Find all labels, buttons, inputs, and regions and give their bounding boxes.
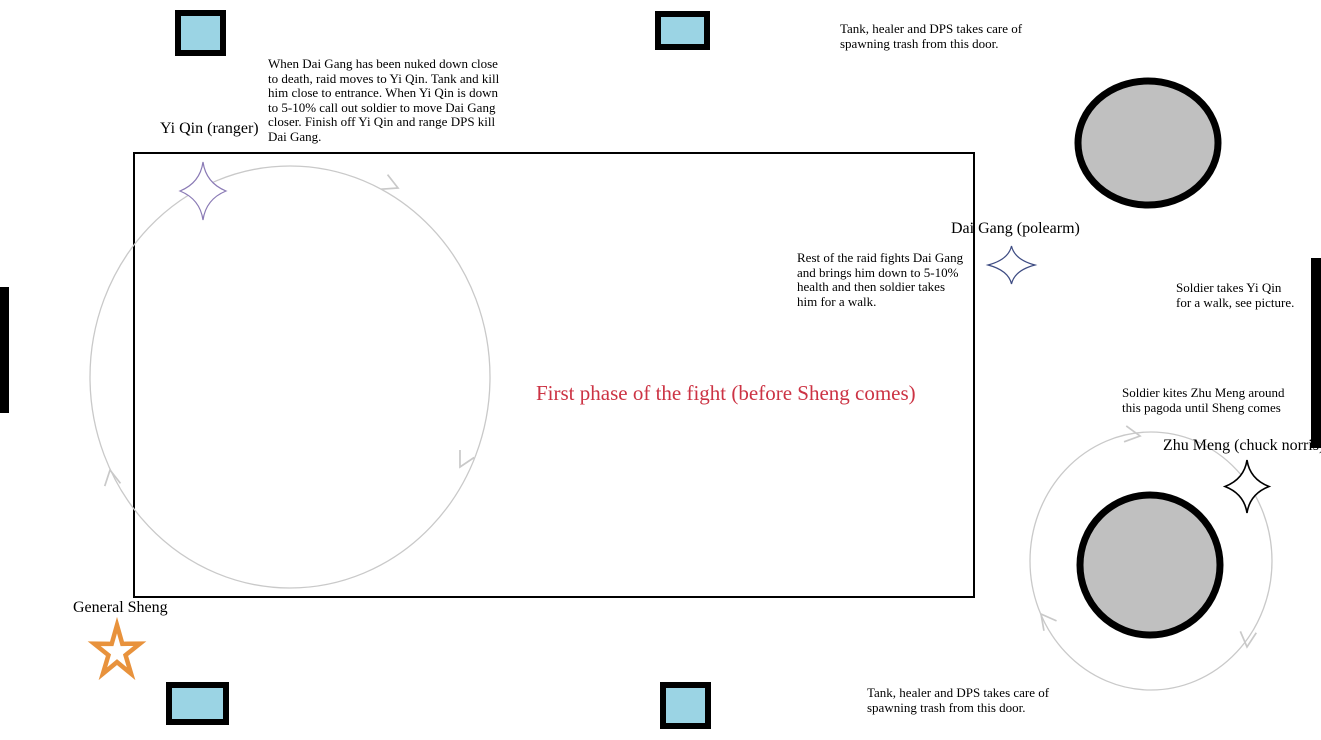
door-top-center (655, 11, 710, 50)
yi-qin-star-icon (180, 162, 226, 220)
note-soldier-kites: Soldier kites Zhu Meng around this pagod… (1122, 386, 1312, 415)
note-rest-raid: Rest of the raid fights Dai Gang and bri… (797, 251, 982, 309)
door-bottom-left (166, 682, 229, 725)
door-bottom-center (660, 682, 711, 729)
zhu-meng-star-icon (1225, 460, 1269, 513)
label-general-sheng: General Sheng (73, 599, 168, 617)
note-soldier-walk: Soldier takes Yi Qin for a walk, see pic… (1176, 281, 1321, 310)
diagram-canvas: When Dai Gang has been nuked down close … (0, 0, 1321, 740)
kite-path-room (90, 166, 490, 588)
wall-left (0, 287, 9, 413)
label-zhu-meng: Zhu Meng (chuck norris) (1163, 437, 1321, 455)
path-arrow-icon (1035, 609, 1057, 631)
pagoda-bottom (1080, 495, 1220, 635)
label-yi-qin: Yi Qin (ranger) (160, 120, 259, 138)
dai-gang-star-icon (988, 246, 1035, 284)
path-arrow-icon (381, 175, 401, 196)
label-dai-gang: Dai Gang (polearm) (951, 220, 1080, 238)
door-top-left (175, 10, 226, 56)
note-trash-bottom: Tank, healer and DPS takes care of spawn… (867, 686, 1077, 715)
phase-title: First phase of the fight (before Sheng c… (536, 381, 916, 406)
note-strategy: When Dai Gang has been nuked down close … (268, 57, 514, 147)
shapes-layer (0, 0, 1321, 740)
pagoda-top (1078, 81, 1218, 205)
general-sheng-star-icon (94, 625, 140, 674)
note-trash-top: Tank, healer and DPS takes care of spawn… (840, 22, 1045, 51)
